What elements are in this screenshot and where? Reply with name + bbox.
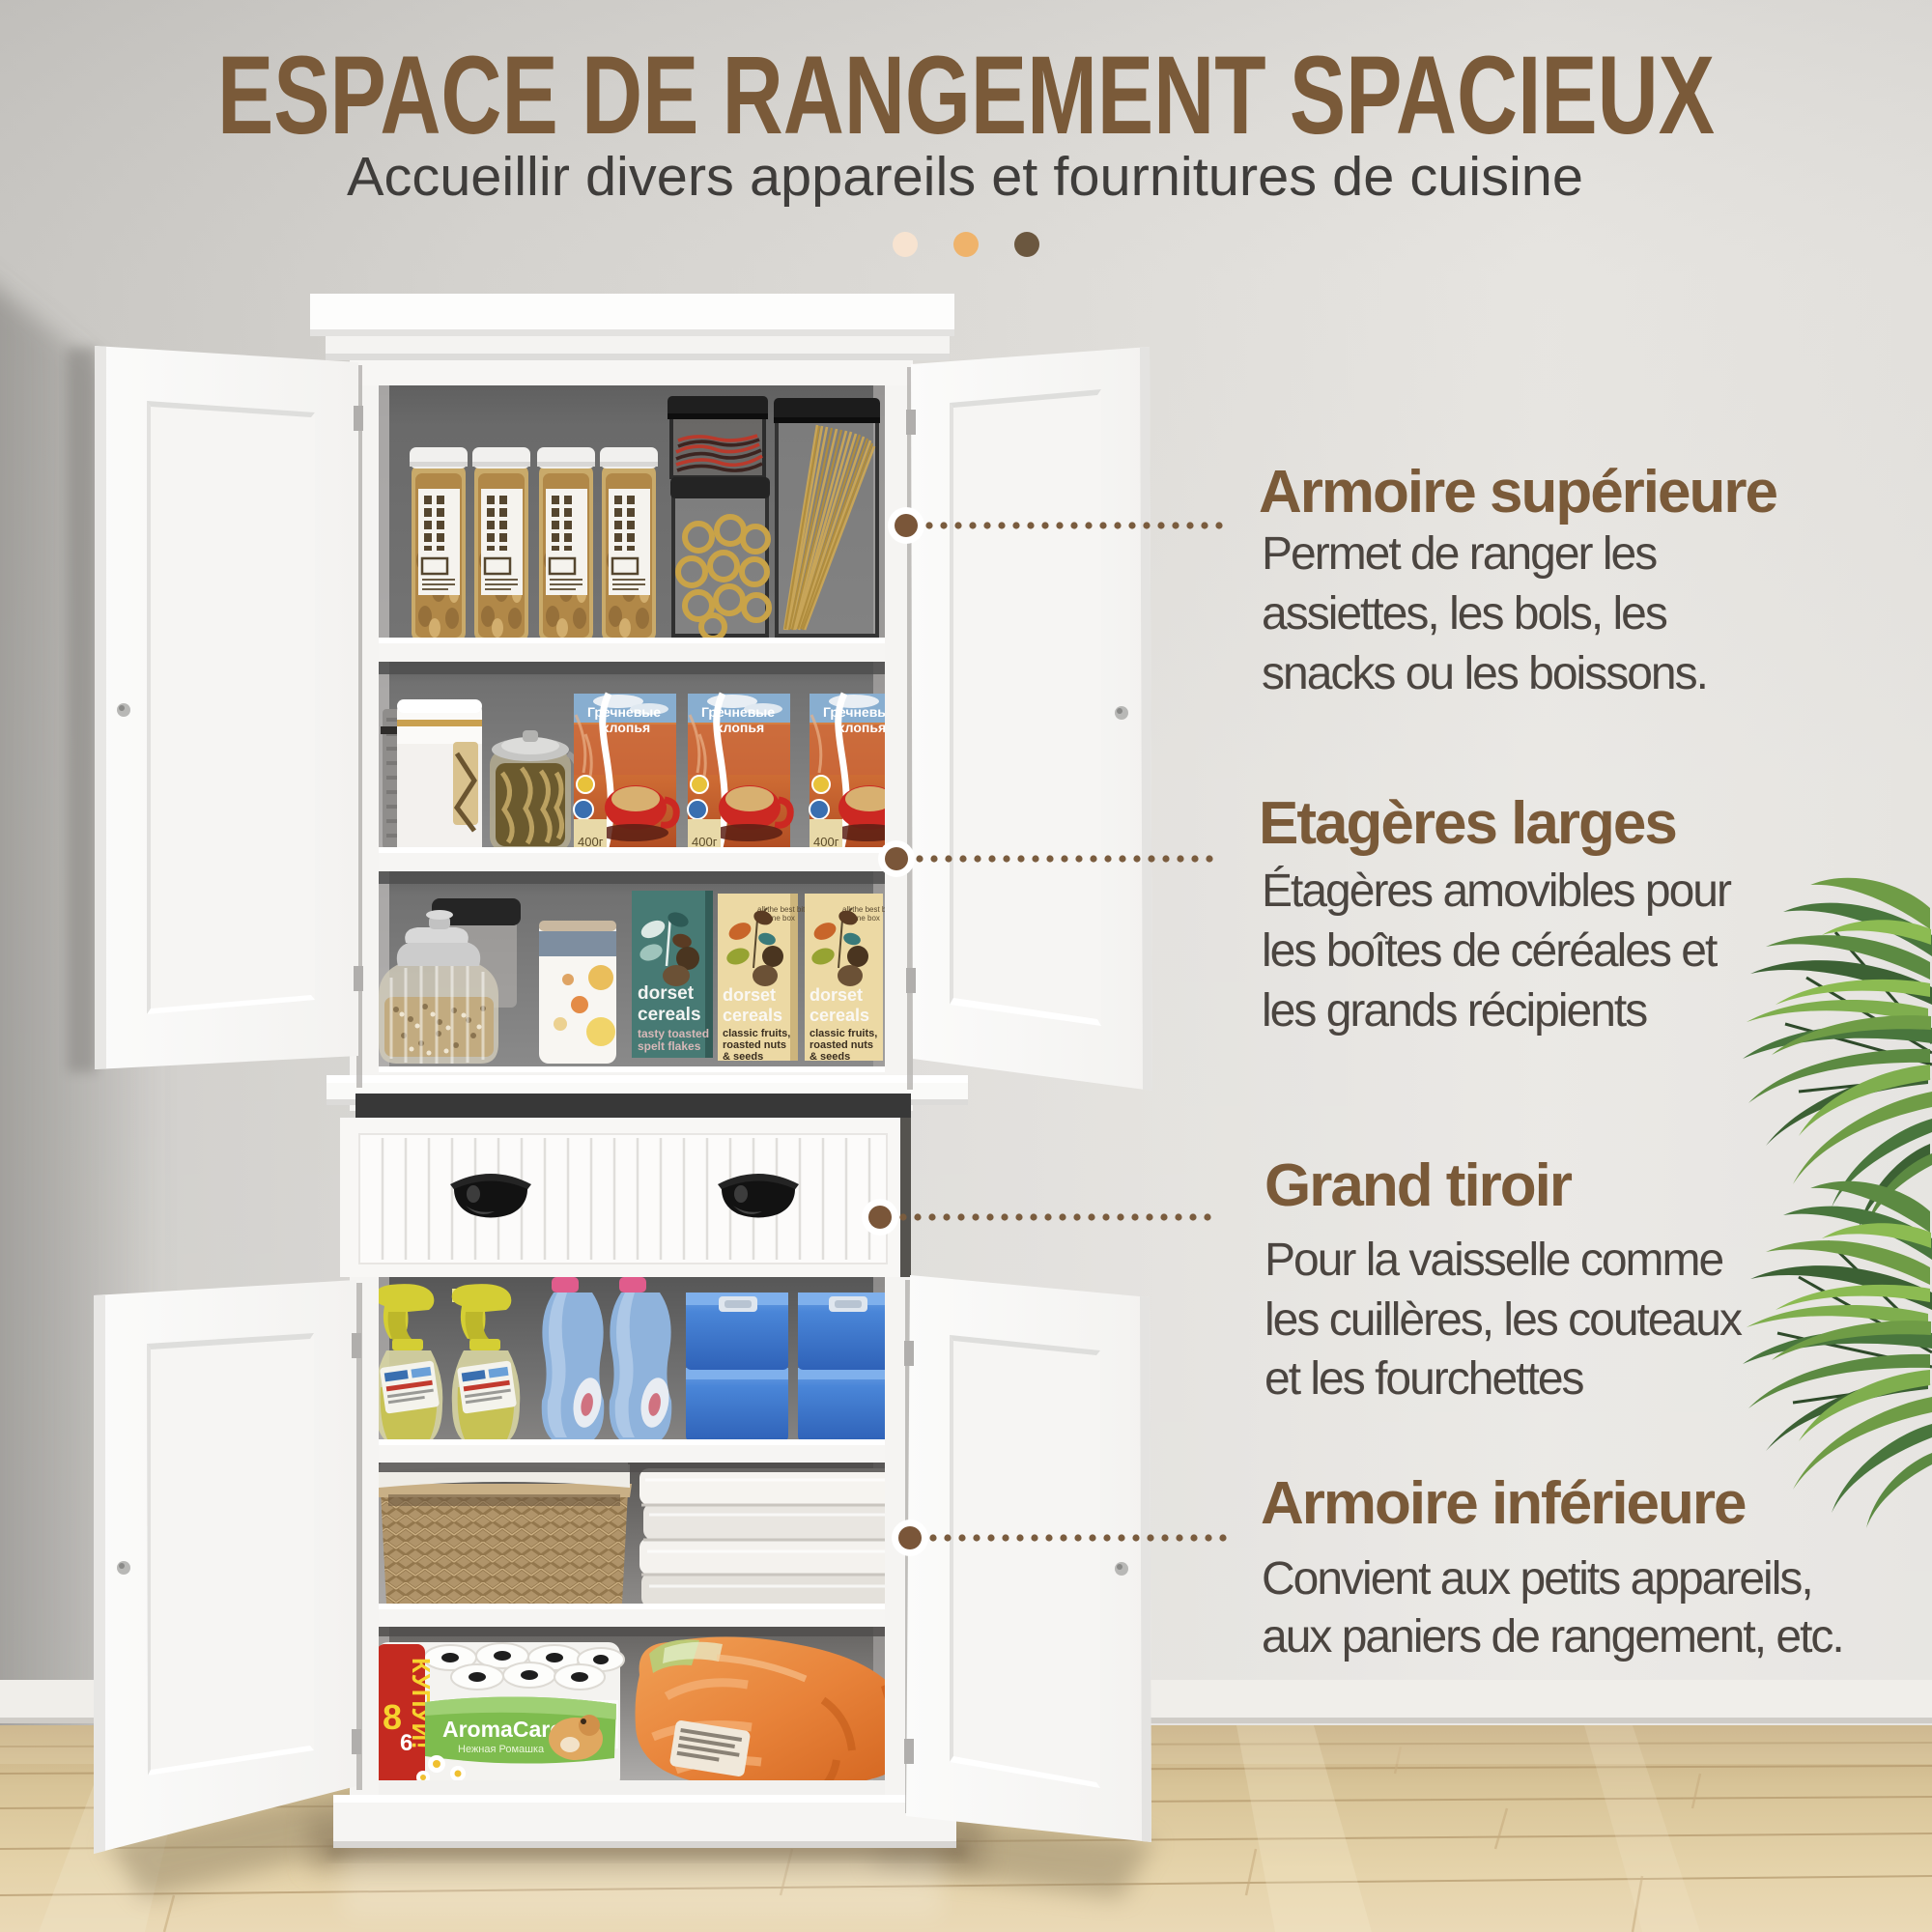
svg-text:les boîtes de céréales et: les boîtes de céréales et (1262, 925, 1718, 977)
svg-text:Нежная Ромашка: Нежная Ромашка (458, 1744, 545, 1755)
svg-text:Grand tiroir: Grand tiroir (1264, 1152, 1573, 1219)
svg-text:ESPACE DE RANGEMENT SPACIEUX: ESPACE DE RANGEMENT SPACIEUX (217, 34, 1715, 157)
svg-text:cereals: cereals (723, 1006, 782, 1025)
svg-text:Гречневые: Гречневые (701, 704, 775, 720)
svg-text:Accueillir divers appareils et: Accueillir divers appareils et fournitur… (347, 146, 1583, 208)
svg-text:Etagères larges: Etagères larges (1259, 790, 1676, 857)
svg-text:Armoire inférieure: Armoire inférieure (1261, 1470, 1746, 1537)
svg-text:400г: 400г (813, 835, 839, 849)
svg-text:AromaCare: AromaCare (442, 1717, 562, 1742)
svg-text:хлопья: хлопья (716, 720, 764, 735)
svg-text:assiettes, les bols, les: assiettes, les bols, les (1262, 588, 1667, 639)
svg-text:& seeds: & seeds (810, 1051, 850, 1063)
svg-text:хлопья: хлопья (838, 720, 886, 735)
svg-text:tasty toasted: tasty toasted (638, 1027, 709, 1040)
svg-text:Гречневые: Гречневые (587, 704, 661, 720)
svg-text:roasted nuts: roasted nuts (810, 1039, 873, 1051)
svg-text:6: 6 (400, 1730, 412, 1756)
svg-text:les cuillères, les couteaux: les cuillères, les couteaux (1264, 1294, 1743, 1346)
svg-text:& seeds: & seeds (723, 1051, 763, 1063)
svg-text:classic fruits,: classic fruits, (723, 1028, 790, 1039)
svg-text:dorset: dorset (638, 983, 695, 1004)
svg-text:хлопья: хлопья (602, 720, 650, 735)
svg-text:Convient aux petits appareils,: Convient aux petits appareils, (1262, 1553, 1812, 1605)
svg-text:dorset: dorset (723, 985, 776, 1005)
svg-text:et les fourchettes: et les fourchettes (1264, 1353, 1584, 1405)
svg-text:Étagères amovibles pour: Étagères amovibles pour (1262, 866, 1732, 917)
svg-text:Pour la vaisselle comme: Pour la vaisselle comme (1264, 1235, 1723, 1286)
svg-text:roasted nuts: roasted nuts (723, 1039, 786, 1051)
svg-text:cereals: cereals (810, 1006, 869, 1025)
svg-text:dorset: dorset (810, 985, 863, 1005)
svg-text:snacks ou les boissons.: snacks ou les boissons. (1262, 648, 1707, 699)
svg-text:cereals: cereals (638, 1005, 701, 1025)
svg-text:400г: 400г (578, 835, 604, 849)
svg-text:les grands récipients: les grands récipients (1262, 985, 1647, 1037)
svg-text:classic fruits,: classic fruits, (810, 1028, 877, 1039)
svg-text:Permet de ranger les: Permet de ranger les (1262, 528, 1657, 580)
svg-text:400г: 400г (692, 835, 718, 849)
svg-text:Armoire supérieure: Armoire supérieure (1259, 459, 1777, 526)
svg-text:aux paniers de rangement, etc.: aux paniers de rangement, etc. (1262, 1611, 1843, 1662)
